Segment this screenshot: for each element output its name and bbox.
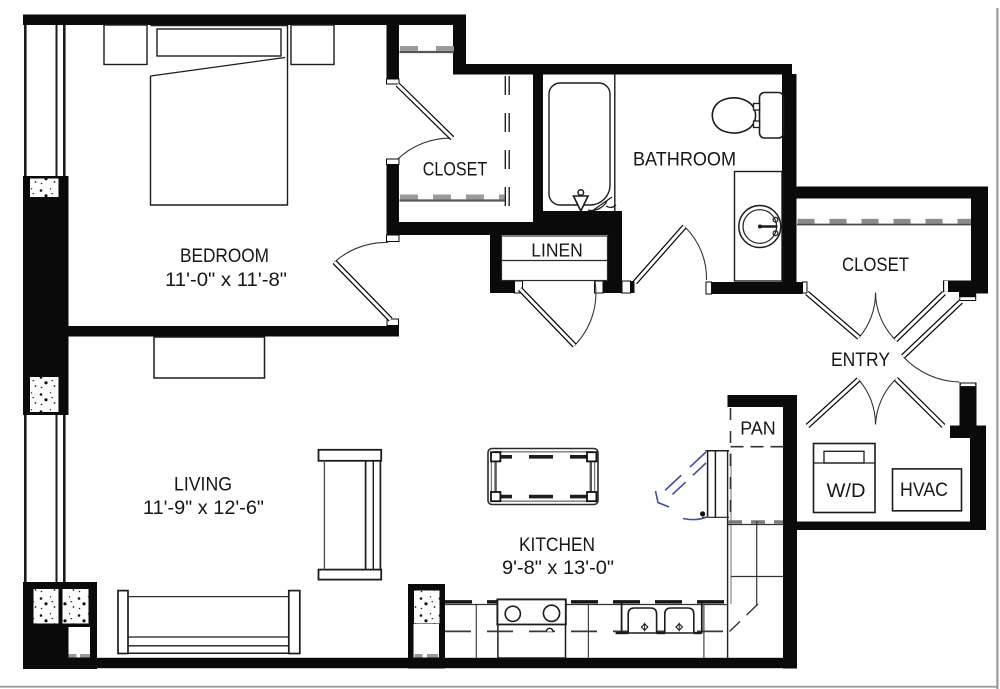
svg-text:CLOSET: CLOSET (423, 159, 488, 181)
svg-text:BEDROOM: BEDROOM (180, 245, 269, 267)
svg-text:BATHROOM: BATHROOM (633, 149, 736, 171)
svg-text:11'-0" x 11'-8": 11'-0" x 11'-8" (165, 269, 287, 291)
svg-text:ENTRY: ENTRY (831, 349, 890, 371)
svg-text:LINEN: LINEN (531, 241, 583, 261)
svg-text:11'-9" x 12'-6": 11'-9" x 12'-6" (143, 497, 264, 519)
svg-text:LIVING: LIVING (174, 474, 232, 496)
svg-text:W/D: W/D (827, 480, 866, 502)
svg-text:9'-8" x 13'-0": 9'-8" x 13'-0" (502, 557, 614, 579)
svg-text:KITCHEN: KITCHEN (519, 534, 595, 556)
svg-text:CLOSET: CLOSET (842, 254, 909, 276)
svg-text:PAN: PAN (740, 418, 776, 439)
svg-text:HVAC: HVAC (900, 479, 948, 501)
